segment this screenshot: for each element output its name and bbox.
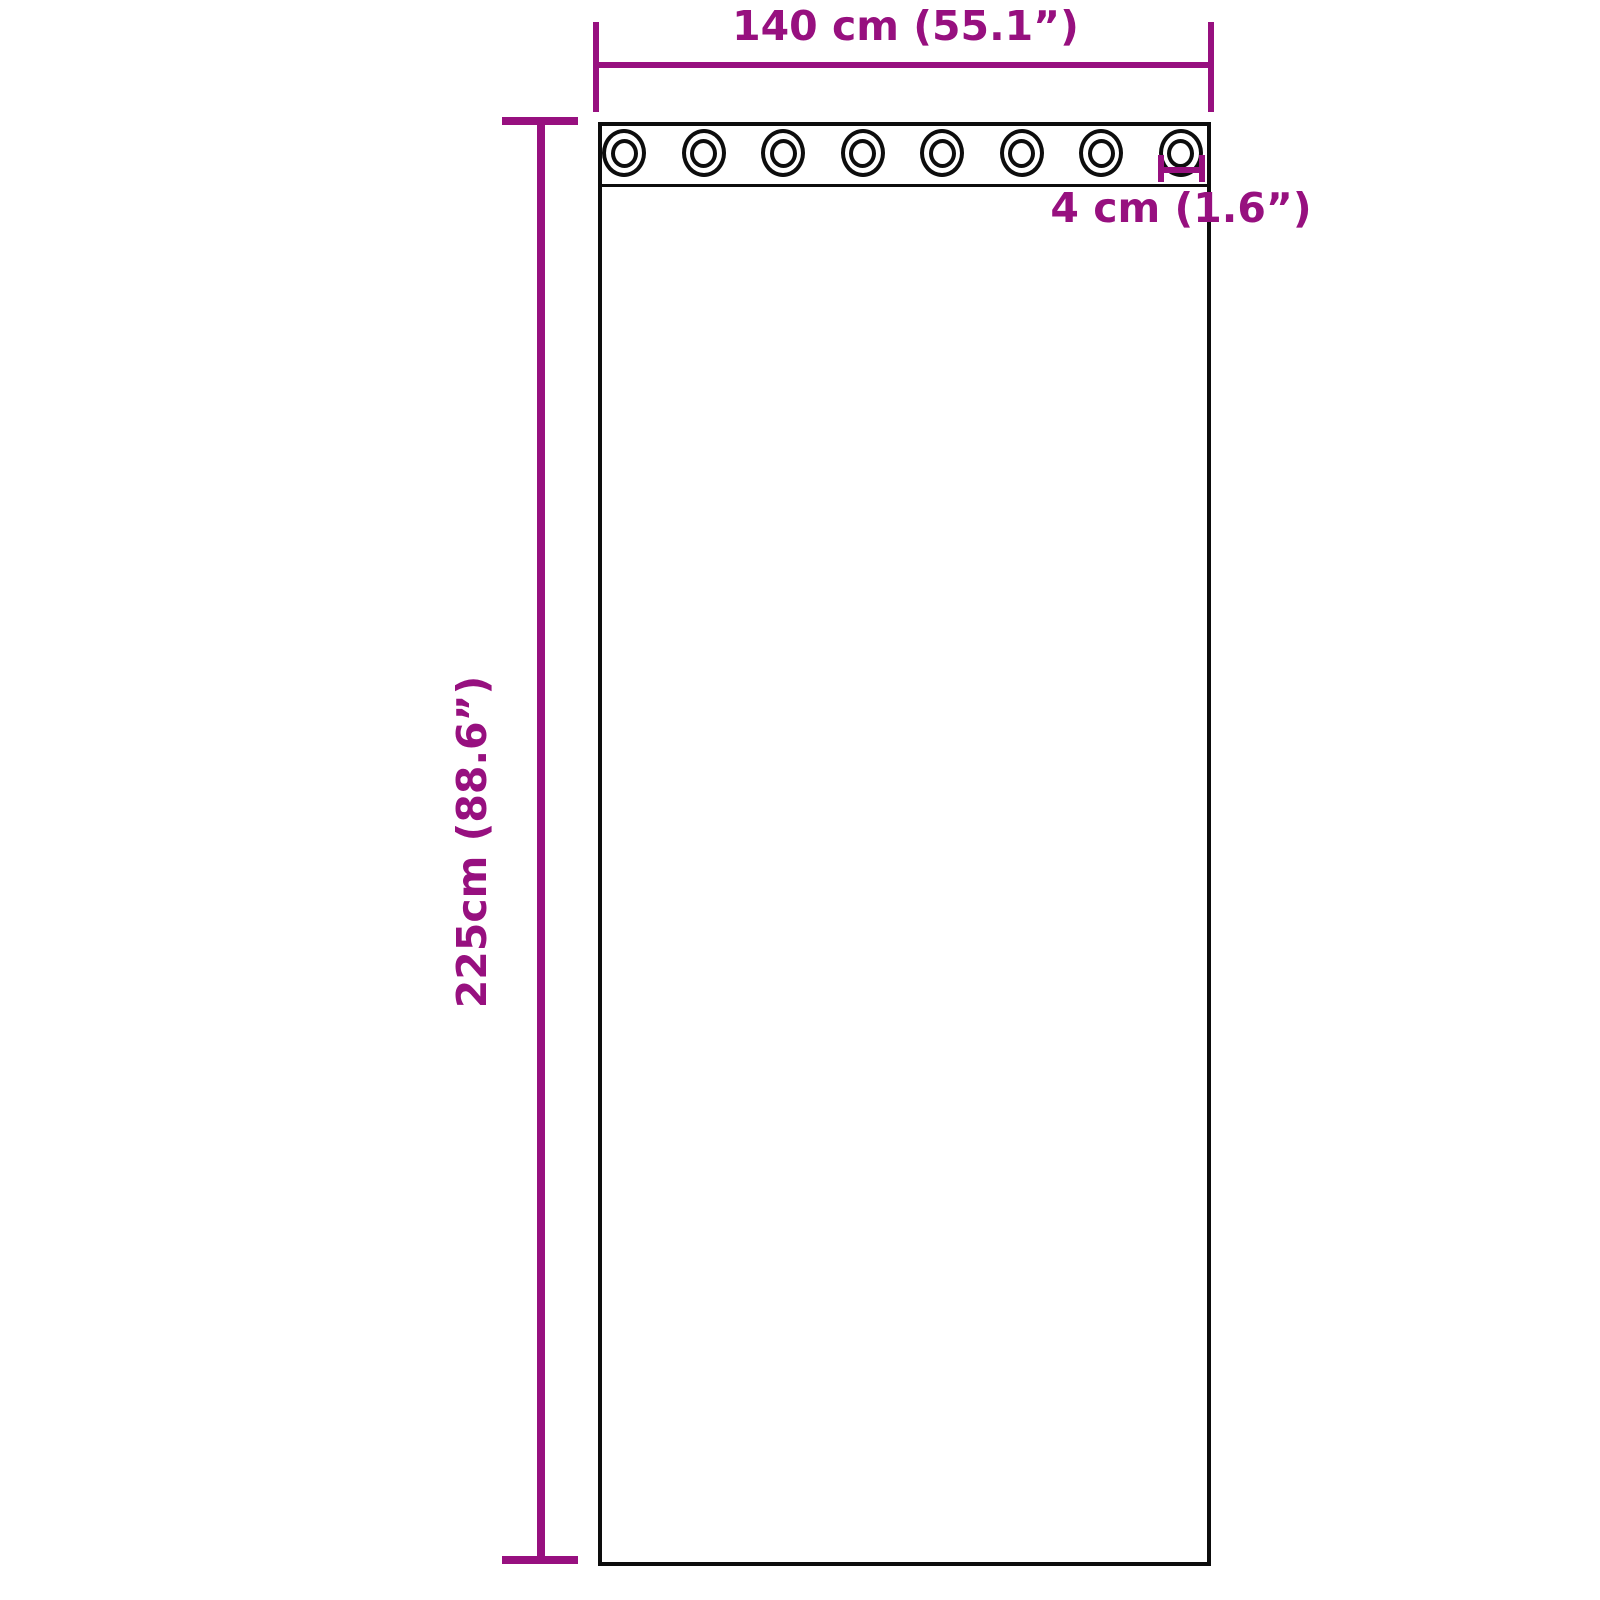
grommet-size-label: 4 cm (1.6”)	[1050, 186, 1311, 230]
grommet-icon	[761, 129, 805, 177]
height-dimension-label: 225cm (88.6”)	[450, 492, 494, 1192]
grommet-inner-ring	[849, 139, 876, 168]
grommet-icon	[841, 129, 885, 177]
grommet-inner-ring	[690, 139, 717, 168]
curtain-panel	[598, 122, 1211, 1566]
grommet-inner-ring	[770, 139, 797, 168]
height-dimension-line	[537, 120, 545, 1560]
grommet-inner-ring	[1167, 139, 1194, 168]
grommet-band	[602, 126, 1207, 187]
grommet-inner-ring	[929, 139, 956, 168]
grommet-bracket-bar	[1158, 167, 1205, 173]
grommet-icon	[602, 129, 646, 177]
width-dimension-label: 140 cm (55.1”)	[596, 4, 1215, 48]
grommet-icon	[1000, 129, 1044, 177]
height-dimension-bottom-cap	[502, 1556, 578, 1564]
grommet-inner-ring	[1008, 139, 1035, 168]
grommet-icon	[1079, 129, 1123, 177]
grommet-inner-ring	[611, 139, 638, 168]
grommet-icon	[920, 129, 964, 177]
width-dimension-line	[593, 62, 1214, 68]
height-dimension-top-cap	[502, 117, 578, 125]
grommet-icon	[682, 129, 726, 177]
grommet-inner-ring	[1088, 139, 1115, 168]
dimension-diagram: 140 cm (55.1”) 225cm (88.6”) 4 cm (1.6”)	[0, 0, 1600, 1600]
